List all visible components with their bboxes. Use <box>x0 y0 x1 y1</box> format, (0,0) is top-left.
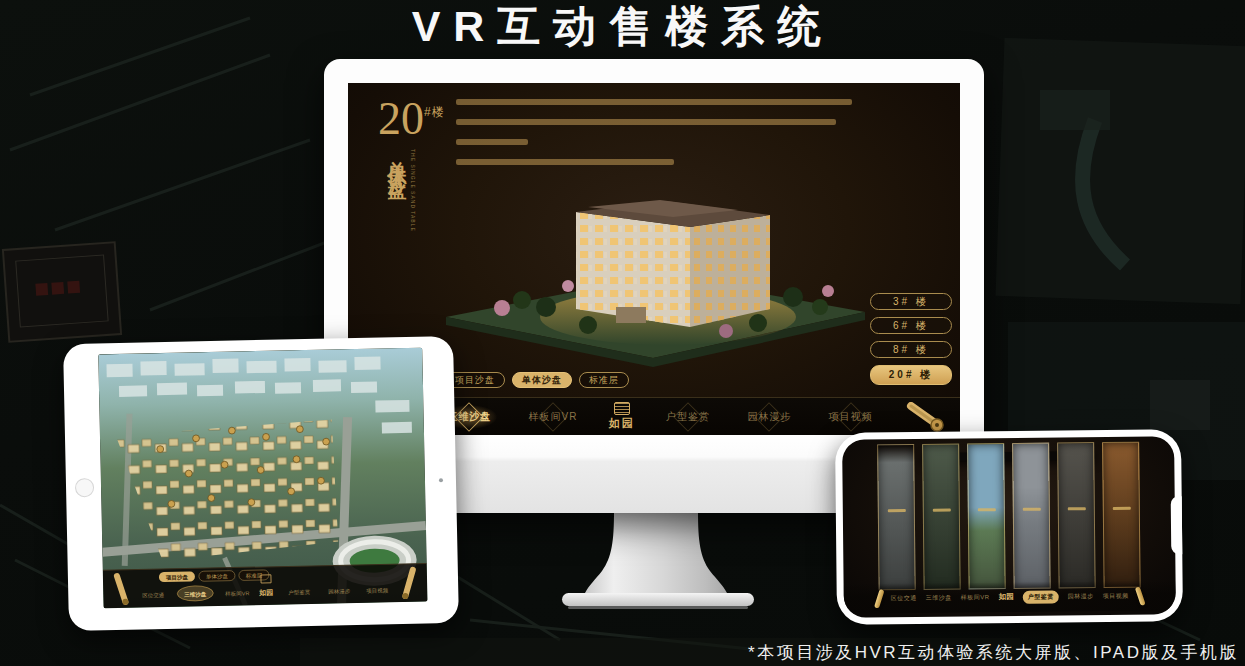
aerial-masterplan-view[interactable]: 项目沙盘 单体沙盘 标准层 区位交通 三维沙盘 <box>98 348 427 609</box>
block-title: 20#楼 <box>378 95 445 143</box>
background-screens-right <box>996 38 1245 480</box>
floor-button-8[interactable]: 8# 楼 <box>870 341 952 358</box>
subtab-single-sandtable[interactable]: 单体沙盘 <box>512 372 572 388</box>
page-title: VR互动售楼系统 <box>0 0 1245 52</box>
background-plaque <box>3 242 121 342</box>
scene-card[interactable] <box>1057 442 1096 588</box>
scroll-icon[interactable] <box>904 402 948 432</box>
scene-card[interactable] <box>967 443 1006 589</box>
nav-item-floorplans[interactable]: 户型鉴赏 <box>660 405 716 429</box>
floor-button-6[interactable]: 6# 楼 <box>870 317 952 334</box>
phone-nav-bar: 区位交通 三维沙盘 样板间VR 如园 户型鉴赏 园林漫步 项目视频 <box>844 580 1176 613</box>
brand-logo[interactable]: 如园 <box>609 402 635 431</box>
poster-canvas: VR互动售楼系统 20#楼 单体沙盘 THE SINGLE SAND TABLE <box>0 0 1245 666</box>
scroll-icon[interactable] <box>874 589 884 609</box>
floor-button-20[interactable]: 20# 楼 <box>870 365 952 385</box>
nav-item-showroom-vr[interactable]: 样板间VR <box>523 405 584 429</box>
camera-icon <box>439 478 443 482</box>
subtab-group: 项目沙盘 单体沙盘 标准层 <box>445 372 629 388</box>
seal-icon <box>614 402 630 415</box>
block-number: 20 <box>378 93 424 144</box>
block-subtitle-vertical: 单体沙盘 <box>384 145 410 173</box>
phone-nav-showroom-vr[interactable]: 样板间VR <box>961 593 990 602</box>
phone-nav-floorplans[interactable]: 户型鉴赏 <box>1023 590 1059 603</box>
phone-nav-project-video[interactable]: 项目视频 <box>1103 591 1129 600</box>
text-line <box>456 99 852 105</box>
tablet-device: 项目沙盘 单体沙盘 标准层 区位交通 三维沙盘 <box>63 336 459 631</box>
monitor-stand <box>546 511 770 615</box>
floor-button-3[interactable]: 3# 楼 <box>870 293 952 310</box>
phone-nav-3d-sandtable[interactable]: 三维沙盘 <box>926 593 952 602</box>
block-unit: #楼 <box>424 105 445 119</box>
scene-gallery <box>877 442 1141 591</box>
nav-item-garden-walk[interactable]: 园林漫步 <box>741 405 797 429</box>
footnote: *本项目涉及HVR互动体验系统大屏版、IPAD版及手机版 <box>748 641 1239 664</box>
phone-notch <box>1171 496 1183 554</box>
home-button-icon[interactable] <box>75 477 94 496</box>
scene-card[interactable] <box>1012 443 1051 589</box>
text-line <box>456 119 836 125</box>
text-line <box>456 139 528 145</box>
scene-card[interactable] <box>922 444 961 590</box>
nav-item-project-video[interactable]: 项目视频 <box>823 405 879 429</box>
scene-card[interactable] <box>877 444 916 590</box>
phone-nav-location[interactable]: 区位交通 <box>891 593 917 602</box>
subtab-standard-floor[interactable]: 标准层 <box>579 372 629 388</box>
building-render[interactable] <box>428 157 880 369</box>
block-subtitle-en: THE SINGLE SAND TABLE <box>410 149 416 232</box>
tablet-screen: 项目沙盘 单体沙盘 标准层 区位交通 三维沙盘 <box>98 348 427 609</box>
phone-nav-garden-walk[interactable]: 园林漫步 <box>1068 592 1094 601</box>
phone-brand-logo[interactable]: 如园 <box>999 592 1014 602</box>
tablet-nav-location[interactable]: 区位交通 <box>142 591 165 598</box>
floor-button-group: 3# 楼 6# 楼 8# 楼 20# 楼 <box>870 293 956 392</box>
phone-device: 区位交通 三维沙盘 样板间VR 如园 户型鉴赏 园林漫步 项目视频 <box>835 429 1183 625</box>
scroll-icon[interactable] <box>1135 586 1146 606</box>
scene-card[interactable] <box>1102 442 1141 588</box>
phone-screen: 区位交通 三维沙盘 样板间VR 如园 户型鉴赏 园林漫步 项目视频 <box>842 436 1176 617</box>
